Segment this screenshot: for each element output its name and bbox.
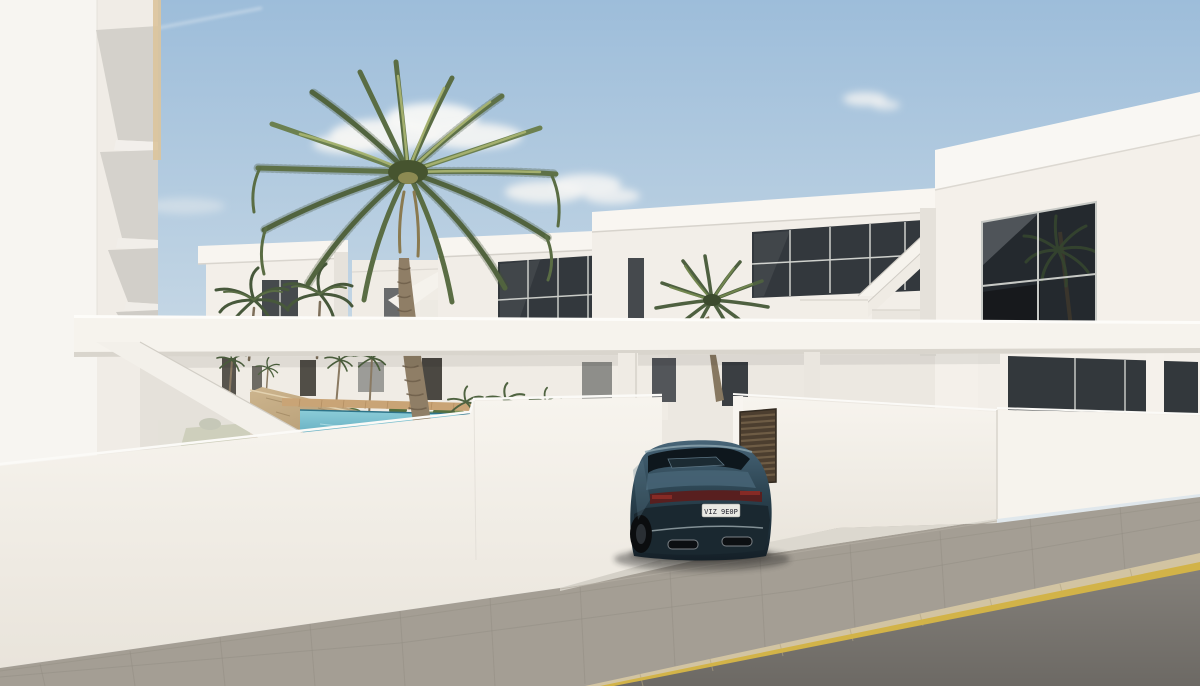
car-wheel-rim bbox=[636, 524, 646, 544]
car-exhaust-left bbox=[668, 540, 698, 549]
car-taillight-right bbox=[740, 491, 760, 495]
car-taillight-left bbox=[652, 495, 672, 499]
building-right-gallery bbox=[978, 352, 1198, 414]
car-exhaust-right bbox=[722, 537, 752, 546]
palm-large-crown-center bbox=[398, 172, 418, 184]
car-license-plate-text: VIZ 9E0P bbox=[704, 508, 738, 516]
render-viewport: VIZ 9E0P bbox=[0, 0, 1200, 686]
building-left-sunlit-edge bbox=[153, 0, 161, 160]
gallery-post-right bbox=[1146, 352, 1164, 414]
building-left-foreground bbox=[0, 0, 161, 478]
